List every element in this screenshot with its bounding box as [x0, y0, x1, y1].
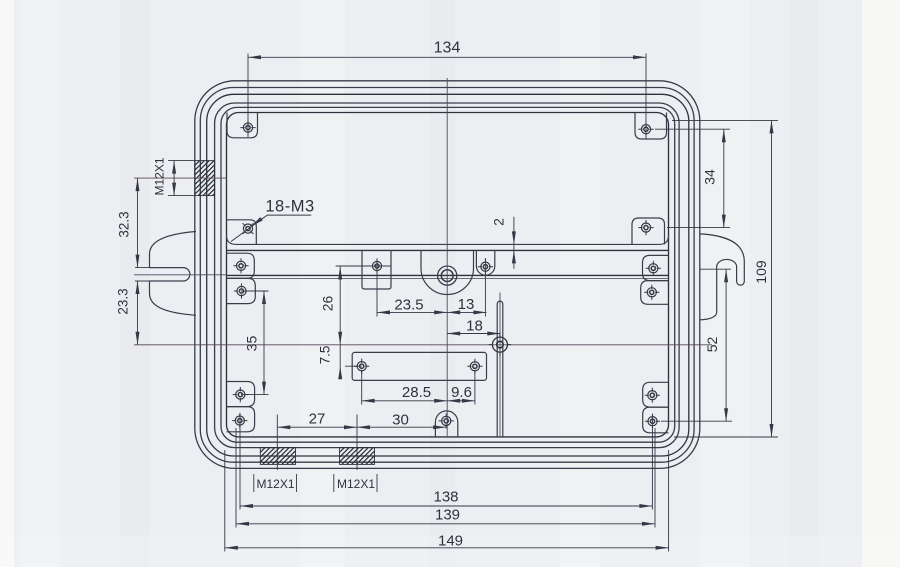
svg-text:138: 138: [433, 489, 458, 506]
svg-text:109: 109: [753, 260, 769, 284]
svg-text:27: 27: [309, 411, 326, 428]
svg-text:32.3: 32.3: [116, 211, 131, 237]
svg-text:149: 149: [438, 533, 463, 550]
svg-text:139: 139: [435, 507, 460, 524]
svg-text:M12X1: M12X1: [337, 477, 375, 491]
svg-text:M12X1: M12X1: [153, 157, 167, 195]
svg-text:134: 134: [434, 40, 461, 57]
svg-text:28.5: 28.5: [402, 384, 431, 401]
svg-text:13: 13: [458, 296, 475, 313]
svg-text:23.3: 23.3: [116, 288, 131, 314]
svg-text:18-M3: 18-M3: [265, 198, 314, 216]
svg-text:35: 35: [244, 336, 260, 352]
svg-text:34: 34: [701, 169, 717, 185]
svg-text:M12X1: M12X1: [256, 477, 294, 491]
svg-text:2: 2: [491, 218, 507, 226]
svg-text:9.6: 9.6: [451, 384, 472, 401]
svg-text:23.5: 23.5: [394, 297, 423, 314]
svg-text:26: 26: [320, 296, 336, 312]
svg-text:7.5: 7.5: [318, 346, 333, 365]
svg-text:30: 30: [392, 412, 409, 429]
svg-text:52: 52: [704, 337, 720, 353]
svg-text:18: 18: [466, 318, 483, 335]
